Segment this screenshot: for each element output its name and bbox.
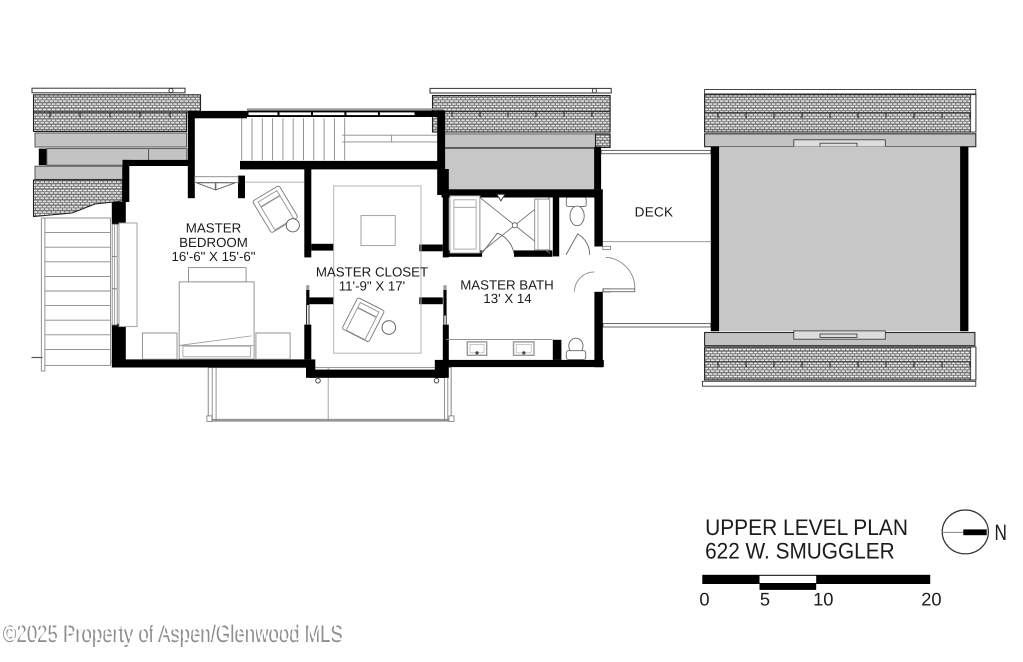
svg-text:10: 10 — [813, 589, 833, 610]
svg-text:MASTER: MASTER — [186, 221, 241, 236]
svg-text:16'-6" X 15'-6": 16'-6" X 15'-6" — [171, 249, 255, 264]
svg-text:13' X 14: 13' X 14 — [483, 291, 531, 306]
svg-text:BEDROOM: BEDROOM — [179, 235, 248, 250]
svg-text:0: 0 — [699, 589, 709, 610]
svg-text:5: 5 — [760, 589, 770, 610]
svg-text:11'-9" X 17': 11'-9" X 17' — [339, 279, 405, 294]
svg-text:20: 20 — [921, 589, 941, 610]
svg-text:N: N — [995, 520, 1007, 545]
svg-text:DECK: DECK — [635, 204, 674, 219]
svg-text:©2025 Property of Aspen/Glenwo: ©2025 Property of Aspen/Glenwood MLS — [5, 619, 345, 646]
svg-text:622 W. SMUGGLER: 622 W. SMUGGLER — [705, 539, 895, 564]
svg-text:UPPER LEVEL PLAN: UPPER LEVEL PLAN — [705, 515, 908, 540]
svg-text:MASTER CLOSET: MASTER CLOSET — [316, 265, 428, 280]
